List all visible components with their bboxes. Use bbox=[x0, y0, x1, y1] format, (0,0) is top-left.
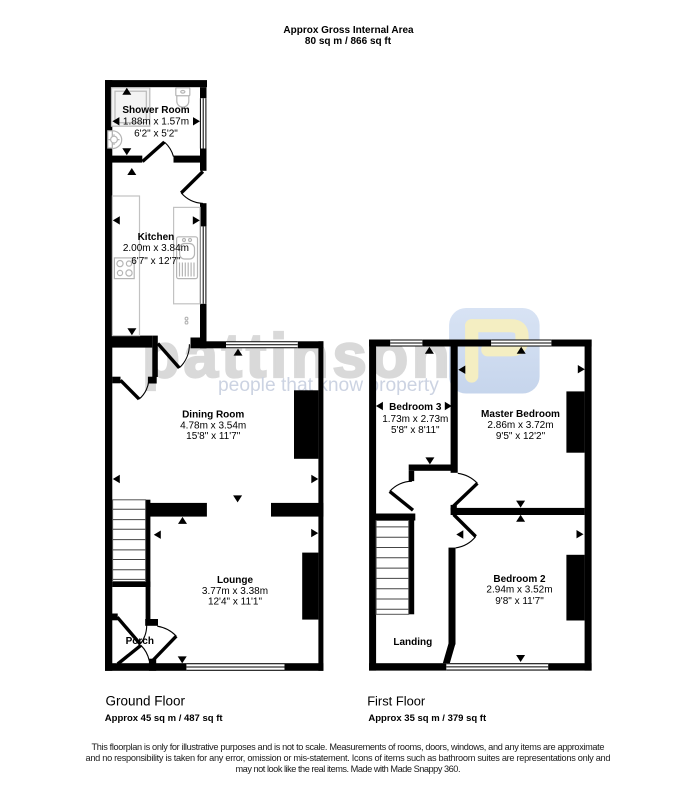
svg-text:First Floor: First Floor bbox=[367, 694, 426, 709]
svg-text:people that know property: people that know property bbox=[218, 375, 439, 396]
svg-text:3.77m x 3.38m: 3.77m x 3.38m bbox=[202, 586, 268, 597]
svg-text:Shower Room: Shower Room bbox=[122, 105, 189, 116]
svg-text:Master Bedroom: Master Bedroom bbox=[481, 409, 560, 420]
svg-text:1.88m x 1.57m: 1.88m x 1.57m bbox=[123, 117, 189, 128]
svg-text:may not look like the real ite: may not look like the real items. Made w… bbox=[236, 764, 461, 774]
svg-text:6'7" x 12'7": 6'7" x 12'7" bbox=[131, 256, 181, 267]
svg-text:Kitchen: Kitchen bbox=[138, 232, 175, 243]
svg-text:and no responsibility is taken: and no responsibility is taken for any e… bbox=[86, 753, 611, 763]
svg-text:Dining Room: Dining Room bbox=[182, 410, 244, 421]
svg-text:2.94m x 3.52m: 2.94m x 3.52m bbox=[486, 585, 552, 596]
svg-text:Approx Gross Internal Area: Approx Gross Internal Area bbox=[283, 25, 414, 36]
svg-text:Ground Floor: Ground Floor bbox=[106, 694, 186, 709]
svg-text:2.86m x 3.72m: 2.86m x 3.72m bbox=[487, 420, 553, 431]
svg-text:9'8" x 11'7": 9'8" x 11'7" bbox=[495, 596, 544, 607]
svg-text:5'8" x 8'11": 5'8" x 8'11" bbox=[391, 425, 440, 436]
svg-text:15'8" x 11'7": 15'8" x 11'7" bbox=[186, 431, 241, 442]
svg-text:2.00m x 3.84m: 2.00m x 3.84m bbox=[123, 243, 189, 254]
svg-text:80 sq m / 866 sq ft: 80 sq m / 866 sq ft bbox=[305, 36, 392, 47]
svg-text:Approx 45 sq m / 487 sq ft: Approx 45 sq m / 487 sq ft bbox=[105, 713, 224, 724]
svg-text:Lounge: Lounge bbox=[217, 575, 254, 586]
svg-text:Approx 35 sq m / 379 sq ft: Approx 35 sq m / 379 sq ft bbox=[368, 713, 487, 724]
svg-text:Landing: Landing bbox=[393, 637, 432, 648]
svg-text:This floorplan is only for ill: This floorplan is only for illustrative … bbox=[92, 742, 605, 752]
svg-text:6'2" x 5'2": 6'2" x 5'2" bbox=[134, 129, 178, 140]
svg-text:Porch: Porch bbox=[126, 636, 154, 647]
svg-text:Bedroom 3: Bedroom 3 bbox=[389, 402, 442, 413]
svg-text:1.73m x 2.73m: 1.73m x 2.73m bbox=[382, 414, 448, 425]
svg-text:12'4" x 11'1": 12'4" x 11'1" bbox=[208, 597, 263, 608]
svg-text:Bedroom 2: Bedroom 2 bbox=[493, 574, 546, 585]
svg-text:9'5" x 12'2": 9'5" x 12'2" bbox=[496, 431, 546, 442]
svg-text:4.78m x 3.54m: 4.78m x 3.54m bbox=[180, 420, 246, 431]
